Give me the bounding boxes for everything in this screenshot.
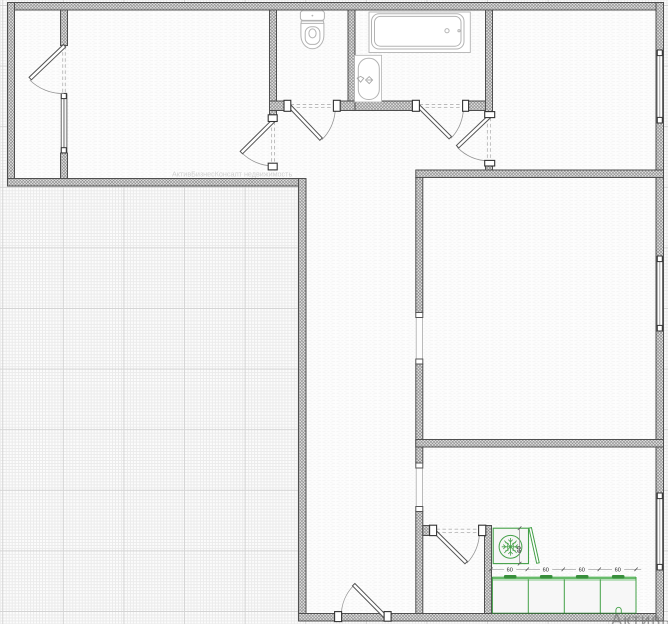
svg-text:60: 60 bbox=[517, 546, 523, 552]
svg-text:60: 60 bbox=[543, 567, 549, 573]
svg-text:Активы: Активы bbox=[611, 611, 668, 624]
svg-text:60: 60 bbox=[507, 567, 513, 573]
svg-text:60: 60 bbox=[579, 567, 585, 573]
svg-text:АктивБизнесКонсалт недвижимос: АктивБизнесКонсалт недвижимость bbox=[172, 169, 292, 178]
svg-text:60: 60 bbox=[615, 567, 621, 573]
